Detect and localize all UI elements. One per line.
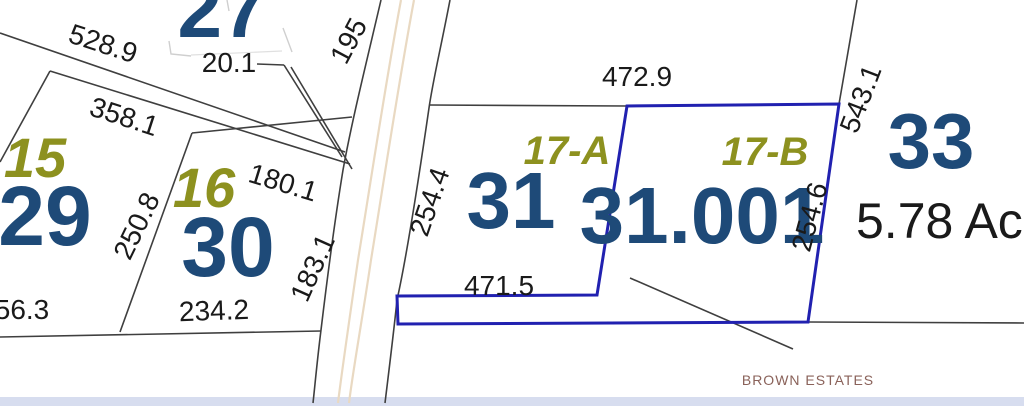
boundary-south-east bbox=[808, 322, 1024, 323]
water-band bbox=[0, 397, 1024, 406]
dimension-471-5: 471.5 bbox=[464, 272, 534, 300]
lot-label-17-B: 17-B bbox=[722, 132, 809, 172]
parcel-number-30: 30 bbox=[181, 205, 274, 289]
parcel-number-27: 27 bbox=[178, 0, 267, 50]
parcel-number-33: 33 bbox=[888, 102, 975, 180]
subdivision-label: BROWN ESTATES bbox=[742, 373, 874, 387]
acreage-label-33: 5.78 Ac bbox=[856, 196, 1023, 246]
boundary-sliver-1 bbox=[284, 65, 342, 157]
dimension-472-9: 472.9 bbox=[602, 63, 672, 91]
boundary-diagonal-south bbox=[630, 278, 793, 349]
parcel-27-corner-mark-right bbox=[283, 28, 292, 52]
dimension-20-1: 20.1 bbox=[202, 49, 257, 77]
parcel-map-canvas[interactable]: 27 15 29 16 30 31 31.001 33 17-A 17-B 5.… bbox=[0, 0, 1024, 406]
lot-label-17-A: 17-A bbox=[524, 131, 611, 171]
parcel-number-31: 31 bbox=[467, 161, 556, 241]
leader-20-1 bbox=[257, 64, 284, 65]
parcel-number-29: 29 bbox=[0, 174, 92, 258]
boundary-472-9 bbox=[429, 105, 627, 106]
road-stripe-right bbox=[349, 0, 414, 403]
dimension-234-2: 234.2 bbox=[178, 296, 249, 326]
boundary-south-west bbox=[0, 331, 321, 337]
boundary-180-1 bbox=[192, 117, 352, 133]
dimension-56-3: 56.3 bbox=[0, 296, 49, 324]
